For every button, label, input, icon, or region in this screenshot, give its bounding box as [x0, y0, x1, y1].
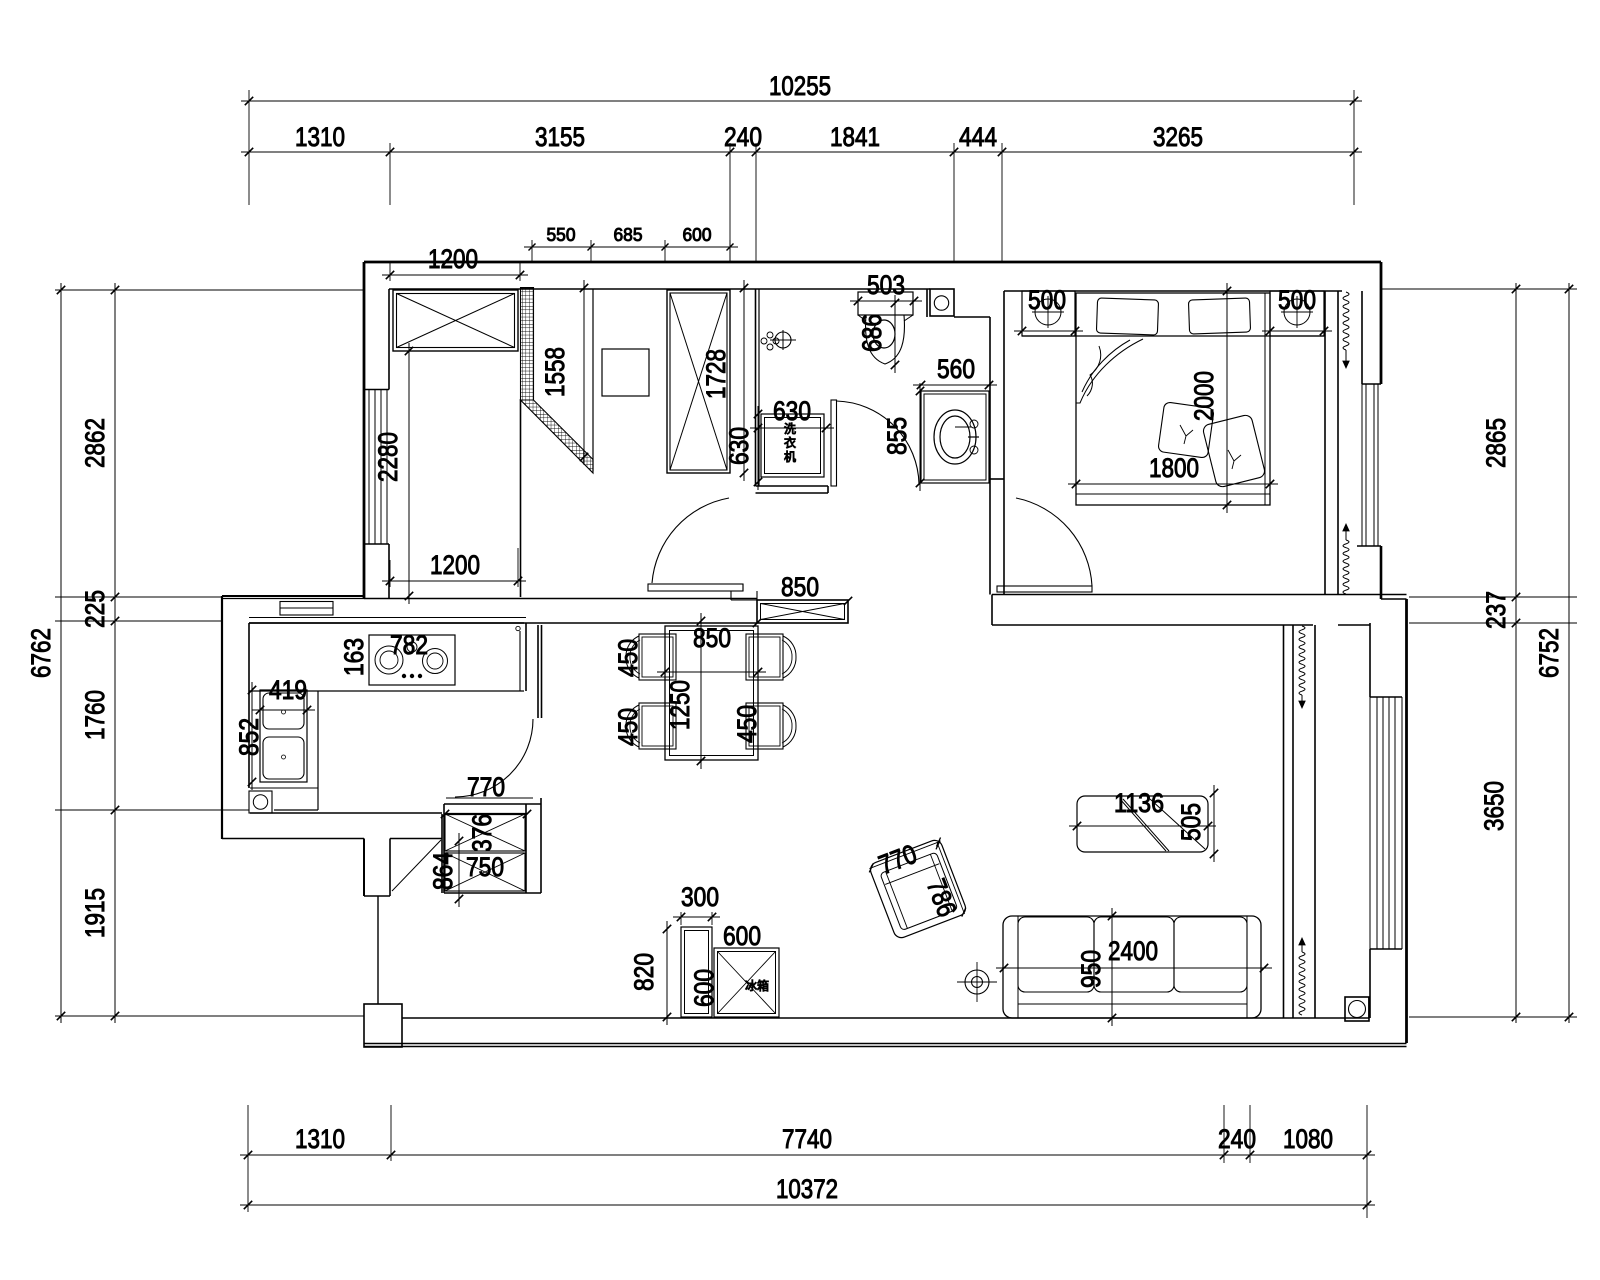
svg-text:300: 300 [681, 882, 719, 912]
svg-text:2280: 2280 [373, 432, 403, 482]
svg-text:850: 850 [693, 623, 731, 653]
svg-text:505: 505 [1176, 803, 1206, 841]
svg-text:770: 770 [467, 772, 505, 802]
svg-text:685: 685 [614, 225, 643, 245]
svg-text:855: 855 [882, 417, 912, 455]
svg-text:864: 864 [428, 852, 458, 890]
svg-text:1200: 1200 [430, 550, 480, 580]
svg-text:163: 163 [339, 638, 369, 676]
svg-text:1760: 1760 [80, 690, 110, 740]
svg-text:7740: 7740 [782, 1124, 832, 1154]
svg-text:2865: 2865 [1481, 418, 1511, 468]
svg-text:750: 750 [466, 852, 504, 882]
svg-text:225: 225 [80, 590, 110, 628]
svg-text:1841: 1841 [830, 122, 880, 152]
svg-text:3650: 3650 [1479, 781, 1509, 831]
svg-text:2000: 2000 [1189, 371, 1219, 421]
svg-text:10372: 10372 [776, 1174, 838, 1204]
svg-text:630: 630 [724, 427, 754, 465]
svg-text:衣: 衣 [784, 435, 796, 450]
svg-text:850: 850 [781, 572, 819, 602]
svg-text:6762: 6762 [26, 628, 56, 678]
svg-text:1200: 1200 [428, 244, 478, 274]
svg-text:503: 503 [867, 270, 905, 300]
svg-text:6752: 6752 [1534, 628, 1564, 678]
svg-text:550: 550 [547, 225, 576, 245]
svg-text:3155: 3155 [535, 122, 585, 152]
svg-text:1915: 1915 [80, 888, 110, 938]
svg-text:2862: 2862 [80, 418, 110, 468]
svg-text:500: 500 [1028, 285, 1066, 315]
svg-text:10255: 10255 [769, 71, 831, 101]
svg-text:3265: 3265 [1153, 122, 1203, 152]
svg-text:444: 444 [959, 122, 997, 152]
svg-text:1080: 1080 [1283, 1124, 1333, 1154]
svg-text:1136: 1136 [1114, 788, 1164, 818]
svg-text:600: 600 [723, 921, 761, 951]
svg-text:600: 600 [683, 225, 712, 245]
svg-text:2400: 2400 [1108, 936, 1158, 966]
svg-text:1800: 1800 [1149, 453, 1199, 483]
svg-text:1310: 1310 [295, 1124, 345, 1154]
svg-text:机: 机 [784, 450, 796, 464]
svg-text:洗: 洗 [784, 422, 796, 436]
svg-text:冰箱: 冰箱 [745, 978, 769, 993]
svg-text:560: 560 [937, 354, 975, 384]
svg-text:1558: 1558 [540, 347, 570, 397]
svg-text:950: 950 [1076, 950, 1106, 988]
svg-text:820: 820 [629, 953, 659, 991]
svg-text:376: 376 [467, 814, 497, 852]
svg-text:1310: 1310 [295, 122, 345, 152]
